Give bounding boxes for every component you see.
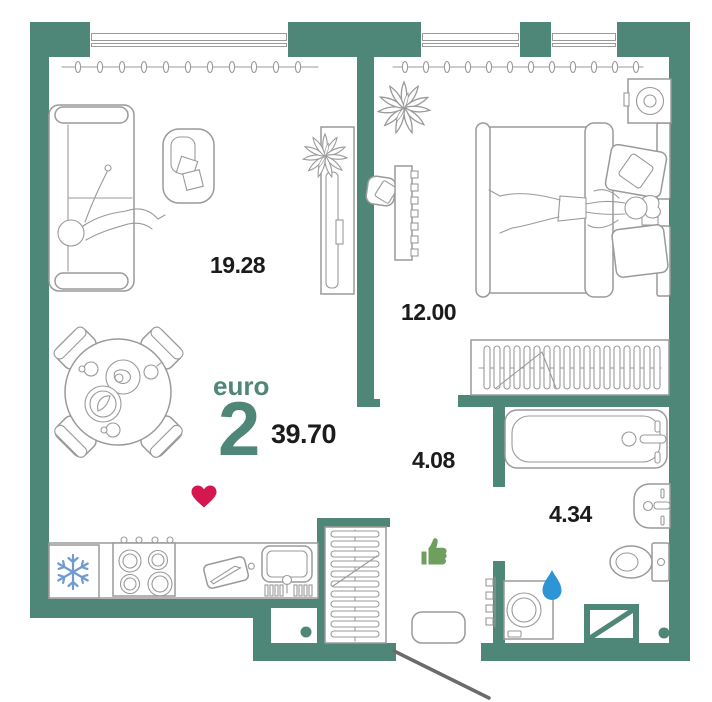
wardrobe-bedroom [471, 340, 669, 395]
area-label-hallway: 4.08 [412, 449, 455, 472]
thumbs-up-icon [422, 538, 447, 564]
dining-table [52, 325, 185, 460]
sofa [49, 105, 134, 291]
curtain-rod-living [62, 62, 318, 73]
coffee-table [163, 129, 214, 203]
pillow [611, 224, 668, 278]
furniture-layer [0, 0, 712, 702]
floor-plan: 19.28 12.00 4.08 4.34 euro 2 39.70 [0, 0, 712, 702]
heart-icon [192, 486, 217, 508]
area-label-bedroom: 12.00 [401, 301, 456, 324]
entry-door-handle-dot [301, 627, 312, 638]
plant-bedroom [378, 82, 430, 133]
kitchen-sink [262, 546, 312, 596]
stove [113, 537, 175, 596]
unit-rooms-count: 2 [218, 392, 260, 468]
vent-shaft [587, 607, 636, 641]
water-drop-icon [543, 570, 562, 600]
drain-dot [659, 628, 670, 639]
area-label-living: 19.28 [210, 254, 265, 277]
nightstand [624, 79, 671, 123]
area-label-bathroom: 4.34 [549, 503, 592, 526]
bathroom-sink [634, 484, 670, 528]
desk [365, 166, 418, 260]
entry-door-swing [394, 651, 489, 698]
fridge [49, 545, 99, 598]
towel-rail [486, 577, 495, 627]
curtain-rod-bedroom [393, 62, 643, 73]
pillow [604, 143, 667, 198]
bathtub [505, 410, 667, 468]
toilet [610, 543, 669, 581]
wardrobe-hallway [325, 527, 386, 643]
doormat [412, 612, 465, 643]
unit-total-area: 39.70 [271, 421, 336, 448]
